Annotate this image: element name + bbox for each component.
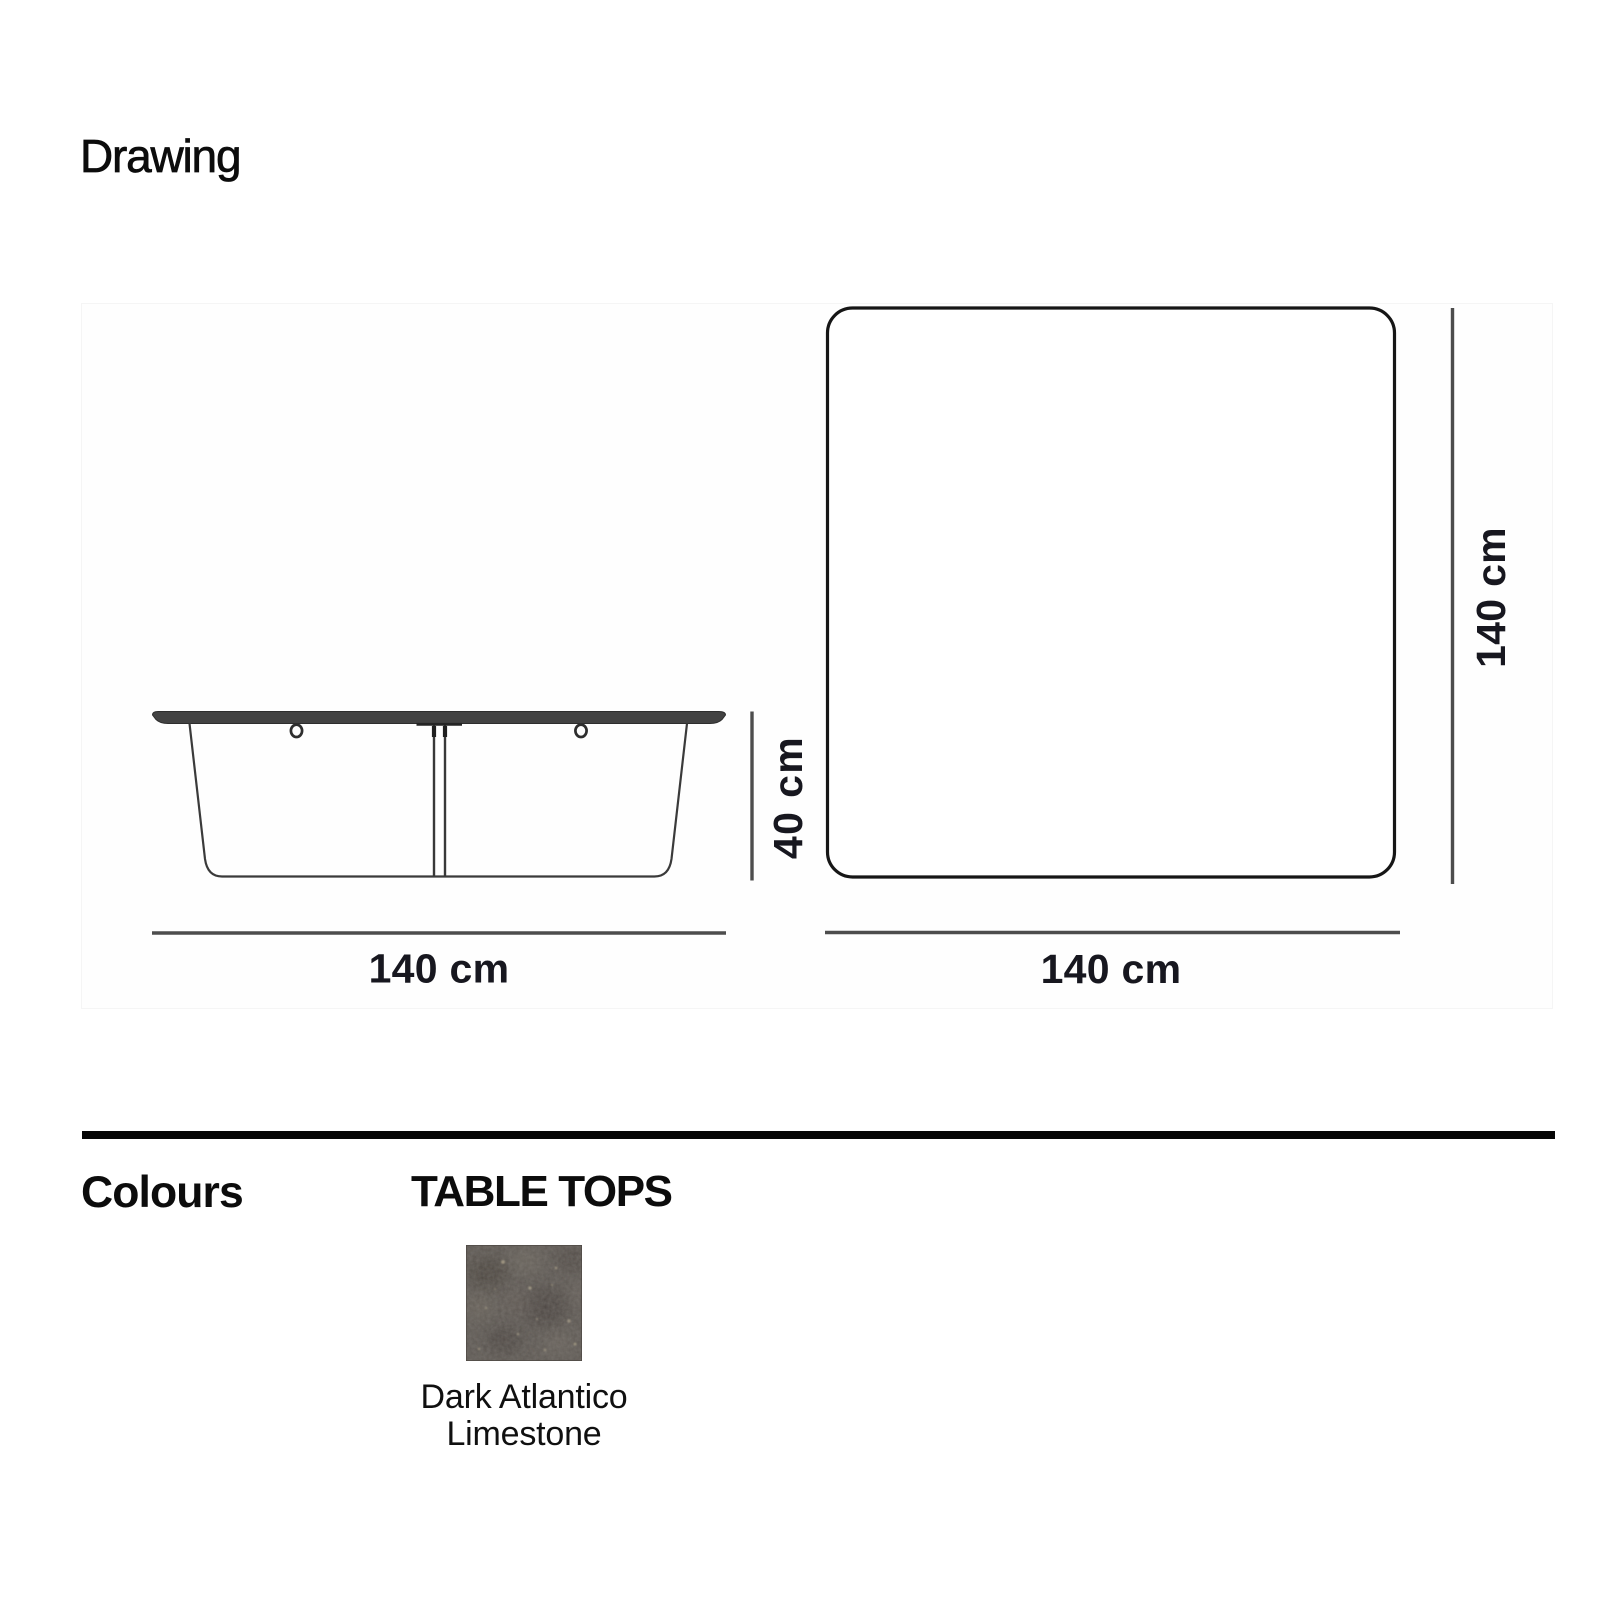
svg-text:140 cm: 140 cm [1041, 946, 1182, 992]
svg-text:140 cm: 140 cm [1468, 527, 1514, 668]
svg-text:40 cm: 40 cm [765, 736, 811, 859]
svg-text:140 cm: 140 cm [369, 945, 510, 991]
